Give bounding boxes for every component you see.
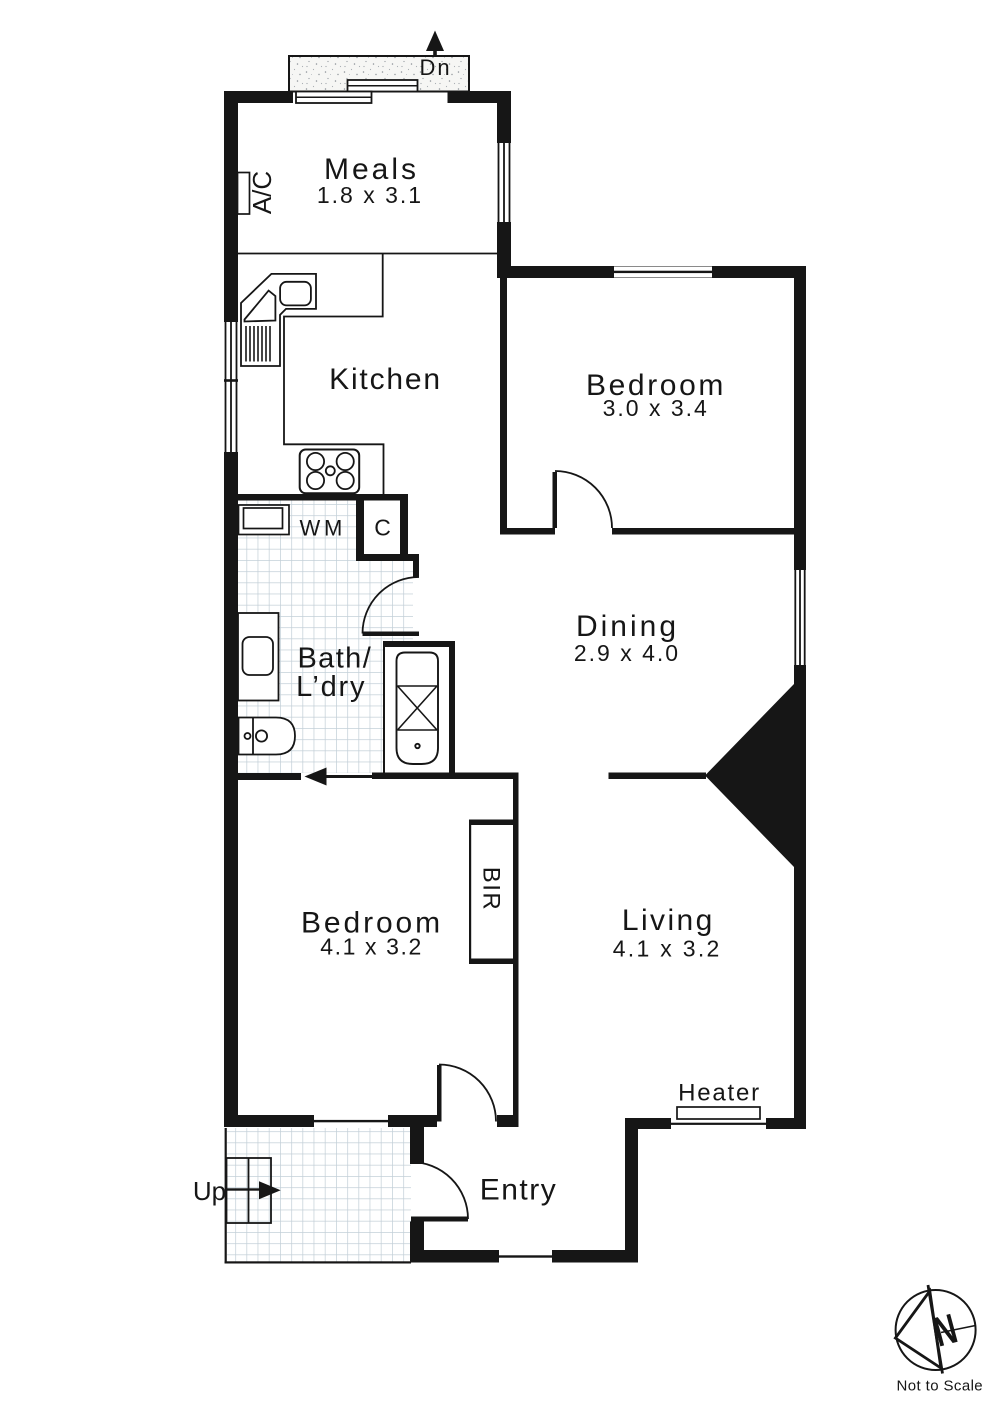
svg-text:BIR: BIR <box>478 867 505 912</box>
svg-text:Entry: Entry <box>480 1174 558 1207</box>
svg-text:4.1 x 3.2: 4.1 x 3.2 <box>320 934 423 960</box>
svg-text:Not to Scale: Not to Scale <box>897 1378 984 1395</box>
svg-text:A/C: A/C <box>247 171 277 214</box>
svg-text:1.8 x 3.1: 1.8 x 3.1 <box>317 182 423 208</box>
svg-text:3.0 x 3.4: 3.0 x 3.4 <box>603 395 709 421</box>
svg-text:C: C <box>374 515 391 541</box>
svg-text:Dining: Dining <box>576 610 679 643</box>
svg-text:Up: Up <box>193 1176 226 1206</box>
svg-text:4.1 x 3.2: 4.1 x 3.2 <box>613 936 722 962</box>
svg-text:Bath/: Bath/ <box>297 643 372 675</box>
svg-text:WM: WM <box>299 516 346 541</box>
svg-text:L’dry: L’dry <box>296 671 366 703</box>
svg-text:Kitchen: Kitchen <box>329 363 442 396</box>
svg-text:2.9 x 4.0: 2.9 x 4.0 <box>574 640 680 666</box>
svg-text:Dn: Dn <box>419 55 451 80</box>
svg-text:Living: Living <box>622 904 715 937</box>
svg-text:Heater: Heater <box>678 1080 761 1107</box>
